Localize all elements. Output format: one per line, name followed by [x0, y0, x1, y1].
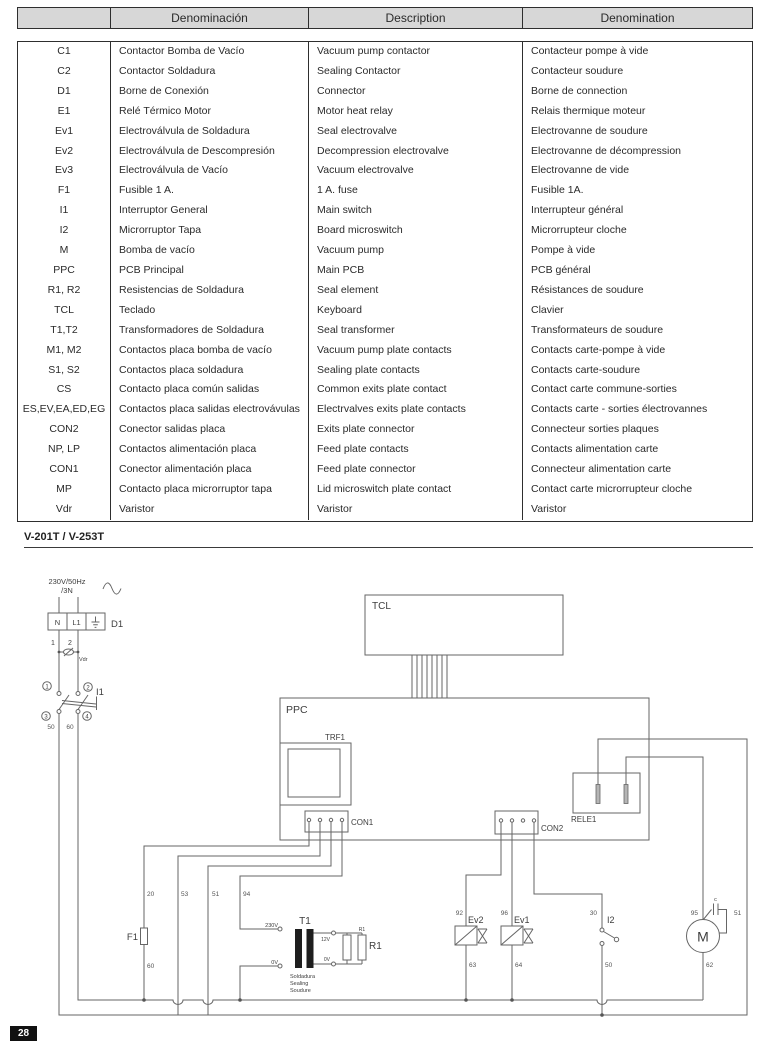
table-row: E1 Relé Térmico Motor Motor heat relay R… — [18, 102, 752, 122]
cell-description: Seal transformer — [309, 321, 523, 341]
cell-code: NP, LP — [18, 440, 111, 460]
cell-denominacion: Contacto placa microrruptor tapa — [111, 480, 309, 500]
cell-code: PPC — [18, 261, 111, 281]
table-row: C2 Contactor Soldadura Sealing Contactor… — [18, 62, 752, 82]
legend-header-fr: Denomination — [523, 8, 752, 28]
con1-label: CON1 — [351, 818, 374, 827]
supply-label-2: /3N — [61, 586, 73, 595]
cell-denomination: Contacteur pompe à vide — [523, 42, 752, 62]
cell-description: Sealing Contactor — [309, 62, 523, 82]
cell-code: Ev3 — [18, 161, 111, 181]
wire-20: 20 — [147, 891, 155, 898]
cell-code: S1, S2 — [18, 361, 111, 381]
f1-label: F1 — [127, 932, 138, 943]
d1-pin2: 2 — [68, 640, 72, 647]
cell-description: Seal element — [309, 281, 523, 301]
cell-description: Motor heat relay — [309, 102, 523, 122]
table-row: Ev3 Electroválvula de Vacío Vacuum elect… — [18, 161, 752, 181]
cell-denomination: Contacteur soudure — [523, 62, 752, 82]
cell-description: Board microswitch — [309, 221, 523, 241]
con1-wire-94 — [240, 820, 342, 929]
wire-94: 94 — [243, 891, 251, 898]
cell-denomination: Clavier — [523, 301, 752, 321]
cell-code: M — [18, 241, 111, 261]
wire-51b: 51 — [734, 910, 742, 917]
cell-denominacion: Contactor Soldadura — [111, 62, 309, 82]
table-row: MP Contacto placa microrruptor tapa Lid … — [18, 480, 752, 500]
cell-denomination: Varistor — [523, 500, 752, 520]
t1-prim-top: 230V — [265, 923, 278, 929]
section-title: V-201T / V-253T — [24, 531, 104, 543]
con2-wire-92 — [466, 820, 501, 926]
i2-lever — [604, 932, 615, 939]
d1-cell-n: N — [55, 618, 60, 627]
bus-60 — [78, 714, 703, 1005]
cell-denomination: Contacts carte-pompe à vide — [523, 341, 752, 361]
cell-description: Electrvalves exits plate contacts — [309, 400, 523, 420]
cell-denomination: Contact carte commune-sorties — [523, 380, 752, 400]
i1-w50: 50 — [47, 724, 55, 731]
wire-51: 51 — [212, 891, 220, 898]
cell-denominacion: Interruptor General — [111, 201, 309, 221]
d1-pin1: 1 — [51, 640, 55, 647]
cell-denominacion: Relé Térmico Motor — [111, 102, 309, 122]
i2-label: I2 — [607, 915, 615, 925]
cell-denominacion: Transformadores de Soldadura — [111, 321, 309, 341]
wire-63: 63 — [469, 962, 477, 969]
table-row: ES,EV,EA,ED,EG Contactos placa salidas e… — [18, 400, 752, 420]
t1-0v-return — [240, 966, 278, 1000]
wire-53: 53 — [181, 891, 189, 898]
trf1-label: TRF1 — [325, 733, 346, 742]
cell-denominacion: Contactos alimentación placa — [111, 440, 309, 460]
cell-denomination: Electrovanne de vide — [523, 161, 752, 181]
supply-label-1: 230V/50Hz — [48, 577, 85, 586]
cell-denominacion: Conector salidas placa — [111, 420, 309, 440]
t1-label: T1 — [299, 916, 311, 927]
rele1-bar-2 — [624, 785, 628, 804]
t1-sec-top: 12V — [321, 937, 331, 943]
cell-denominacion: Contactor Bomba de Vacío — [111, 42, 309, 62]
table-row: F1 Fusible 1 A. 1 A. fuse Fusible 1A. — [18, 181, 752, 201]
wire-60: 60 — [147, 963, 155, 970]
earth-icon — [92, 617, 100, 628]
tcl-label: TCL — [372, 601, 391, 612]
ribbon-cable — [412, 655, 447, 698]
wiring-diagram: 230V/50Hz /3N N L1 D1 1 2 Vdr 1 2 3 4 I1… — [0, 555, 768, 1041]
r1-resistor-b — [358, 935, 366, 960]
table-row: M1, M2 Contactos placa bomba de vacío Va… — [18, 341, 752, 361]
cell-code: TCL — [18, 301, 111, 321]
cell-denomination: Contact carte microrrupteur cloche — [523, 480, 752, 500]
vdr-label: Vdr — [79, 657, 88, 663]
table-row: TCL Teclado Keyboard Clavier — [18, 301, 752, 321]
cell-code: I1 — [18, 201, 111, 221]
cell-code: D1 — [18, 82, 111, 102]
cell-description: Lid microswitch plate contact — [309, 480, 523, 500]
table-row: I1 Interruptor General Main switch Inter… — [18, 201, 752, 221]
cell-description: Feed plate connector — [309, 460, 523, 480]
table-row: R1, R2 Resistencias de Soldadura Seal el… — [18, 281, 752, 301]
cell-description: Common exits plate contact — [309, 380, 523, 400]
cell-code: E1 — [18, 102, 111, 122]
con1-wire-51 — [208, 820, 331, 1015]
cell-denomination: Connecteur sorties plaques — [523, 420, 752, 440]
cell-denomination: Electrovanne de soudure — [523, 122, 752, 142]
cell-denomination: Transformateurs de soudure — [523, 321, 752, 341]
cell-denominacion: Teclado — [111, 301, 309, 321]
t1-prim-bot: 0V — [271, 960, 278, 966]
cell-code: F1 — [18, 181, 111, 201]
wire-95: 95 — [691, 910, 699, 917]
cell-code: M1, M2 — [18, 341, 111, 361]
i2-roller — [614, 937, 618, 941]
cell-denomination: Borne de connection — [523, 82, 752, 102]
ev2-valve-icon — [478, 929, 487, 943]
cell-code: ES,EV,EA,ED,EG — [18, 400, 111, 420]
cell-code: Vdr — [18, 500, 111, 520]
table-row: PPC PCB Principal Main PCB PCB général — [18, 261, 752, 281]
table-row: S1, S2 Contactos placa soldadura Sealing… — [18, 361, 752, 381]
r1-label: R1 — [369, 941, 382, 952]
cell-denominacion: Contactos placa salidas electrovávulas — [111, 400, 309, 420]
ev1-valve-icon — [524, 929, 533, 943]
table-row: D1 Borne de Conexión Connector Borne de … — [18, 82, 752, 102]
table-row: I2 Microrruptor Tapa Board microswitch M… — [18, 221, 752, 241]
cell-description: Decompression electrovalve — [309, 142, 523, 162]
tilde-icon — [103, 583, 121, 594]
t1-caption-en: Sealing — [290, 981, 308, 987]
table-row: C1 Contactor Bomba de Vacío Vacuum pump … — [18, 42, 752, 62]
cell-denomination: Interrupteur général — [523, 201, 752, 221]
cell-denomination: PCB général — [523, 261, 752, 281]
t1-caption-fr: Soudure — [290, 988, 311, 994]
cell-code: R1, R2 — [18, 281, 111, 301]
table-row: CS Contacto placa común salidas Common e… — [18, 380, 752, 400]
d1-cell-l1: L1 — [72, 618, 80, 627]
table-row: CON2 Conector salidas placa Exits plate … — [18, 420, 752, 440]
rele1-wire — [626, 757, 703, 920]
cell-denominacion: Electroválvula de Soldadura — [111, 122, 309, 142]
cell-denominacion: Contacto placa común salidas — [111, 380, 309, 400]
cell-code: T1,T2 — [18, 321, 111, 341]
cell-denominacion: PCB Principal — [111, 261, 309, 281]
table-row: T1,T2 Transformadores de Soldadura Seal … — [18, 321, 752, 341]
table-row: M Bomba de vacío Vacuum pump Pompe à vid… — [18, 241, 752, 261]
i1-label: I1 — [96, 687, 104, 698]
r1-small-label: R1 — [359, 927, 366, 933]
con1-wire-20 — [144, 820, 309, 1000]
cell-denomination: Résistances de soudure — [523, 281, 752, 301]
legend-table: C1 Contactor Bomba de Vacío Vacuum pump … — [17, 41, 753, 522]
wire-96: 96 — [501, 910, 509, 917]
i1-w60: 60 — [66, 724, 74, 731]
cell-code: MP — [18, 480, 111, 500]
table-row: Ev1 Electroválvula de Soldadura Seal ele… — [18, 122, 752, 142]
legend-header-en: Description — [309, 8, 523, 28]
ev2-label: Ev2 — [468, 915, 484, 925]
cell-denominacion: Varistor — [111, 500, 309, 520]
rele1-bar-1 — [596, 785, 600, 804]
ev-bottom-wires — [466, 945, 512, 1000]
cell-denominacion: Microrruptor Tapa — [111, 221, 309, 241]
table-row: NP, LP Contactos alimentación placa Feed… — [18, 440, 752, 460]
cell-denominacion: Conector alimentación placa — [111, 460, 309, 480]
cell-denominacion: Contactos placa bomba de vacío — [111, 341, 309, 361]
cell-denominacion: Fusible 1 A. — [111, 181, 309, 201]
cell-description: 1 A. fuse — [309, 181, 523, 201]
cell-description: Main PCB — [309, 261, 523, 281]
wire-30: 30 — [590, 910, 598, 917]
cell-description: Varistor — [309, 500, 523, 520]
wire-64: 64 — [515, 962, 523, 969]
cell-code: CS — [18, 380, 111, 400]
trf1-box-inner — [288, 749, 340, 797]
cell-denomination: Contacts carte - sorties électrovannes — [523, 400, 752, 420]
ppc-label: PPC — [286, 704, 308, 716]
legend-header-row: Denominación Description Denomination — [17, 7, 753, 29]
cell-code: C1 — [18, 42, 111, 62]
tcl-box — [365, 595, 563, 655]
wire-92: 92 — [456, 910, 464, 917]
cell-denominacion: Bomba de vacío — [111, 241, 309, 261]
cell-description: Connector — [309, 82, 523, 102]
wires — [59, 583, 747, 1015]
legend-header-es: Denominación — [111, 8, 309, 28]
cell-denominacion: Borne de Conexión — [111, 82, 309, 102]
motor-label: M — [697, 929, 709, 945]
cell-denomination: Contacts alimentation carte — [523, 440, 752, 460]
cell-code: Ev1 — [18, 122, 111, 142]
wire-62: 62 — [706, 962, 714, 969]
table-row: Ev2 Electroválvula de Descompresión Deco… — [18, 142, 752, 162]
terminals — [42, 682, 619, 968]
cell-denomination: Relais thermique moteur — [523, 102, 752, 122]
ev1-label: Ev1 — [514, 915, 530, 925]
table-row: CON1 Conector alimentación placa Feed pl… — [18, 460, 752, 480]
cell-code: Ev2 — [18, 142, 111, 162]
f1-fuse-body — [141, 928, 148, 945]
cell-denomination: Fusible 1A. — [523, 181, 752, 201]
table-row: Vdr Varistor Varistor Varistor — [18, 500, 752, 520]
t1-caption-es: Soldadura — [290, 974, 316, 980]
legend-header-code — [18, 8, 111, 28]
d1-label: D1 — [111, 619, 123, 630]
cell-description: Sealing plate contacts — [309, 361, 523, 381]
cell-description: Vacuum pump plate contacts — [309, 341, 523, 361]
cell-denomination: Contacts carte-soudure — [523, 361, 752, 381]
cell-code: CON1 — [18, 460, 111, 480]
cell-denomination: Electrovanne de décompression — [523, 142, 752, 162]
con2-label: CON2 — [541, 824, 564, 833]
cell-denominacion: Electroválvula de Vacío — [111, 161, 309, 181]
cell-code: I2 — [18, 221, 111, 241]
cell-description: Vacuum pump contactor — [309, 42, 523, 62]
rele1-label: RELE1 — [571, 815, 597, 824]
cell-denominacion: Contactos placa soldadura — [111, 361, 309, 381]
cell-code: CON2 — [18, 420, 111, 440]
cell-denomination: Connecteur alimentation carte — [523, 460, 752, 480]
bus-50 — [59, 714, 747, 1016]
cell-description: Vacuum pump — [309, 241, 523, 261]
wire-50: 50 — [605, 962, 613, 969]
manual-page: Denominación Description Denomination C1… — [0, 0, 768, 1041]
cell-description: Seal electrovalve — [309, 122, 523, 142]
cell-denominacion: Resistencias de Soldadura — [111, 281, 309, 301]
cell-description: Vacuum electrovalve — [309, 161, 523, 181]
cell-denominacion: Electroválvula de Descompresión — [111, 142, 309, 162]
cell-description: Exits plate connector — [309, 420, 523, 440]
r1-resistor-a — [343, 935, 351, 960]
t1-core-bar-1 — [295, 929, 302, 968]
rele1-box — [573, 773, 640, 813]
cell-denomination: Microrrupteur cloche — [523, 221, 752, 241]
cell-description: Feed plate contacts — [309, 440, 523, 460]
page-number-badge: 28 — [10, 1026, 37, 1041]
title-rule — [24, 547, 753, 548]
t1-core-bar-2 — [307, 929, 314, 968]
cell-denomination: Pompe à vide — [523, 241, 752, 261]
cell-description: Keyboard — [309, 301, 523, 321]
cell-description: Main switch — [309, 201, 523, 221]
cell-code: C2 — [18, 62, 111, 82]
t1-sec-bot: 0V — [324, 957, 331, 963]
capacitor-label: c — [714, 897, 717, 903]
